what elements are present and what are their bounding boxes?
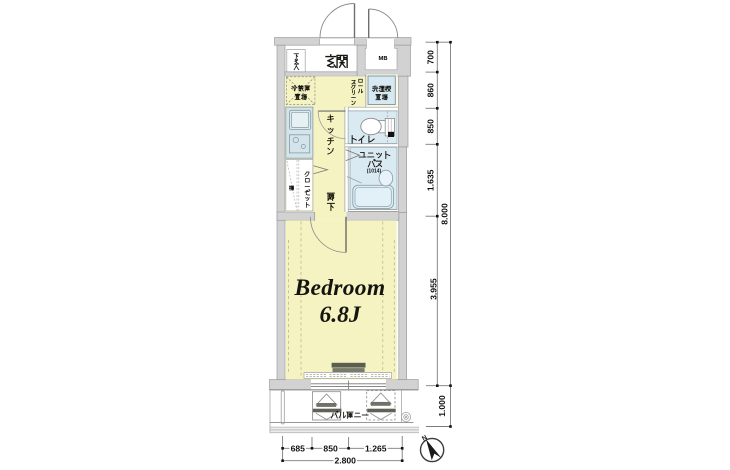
- svg-text:850: 850: [426, 119, 436, 134]
- svg-text:Bedroom: Bedroom: [294, 275, 386, 301]
- svg-text:850: 850: [323, 443, 338, 453]
- svg-text:685: 685: [291, 443, 306, 453]
- svg-text:MB: MB: [378, 56, 387, 62]
- svg-text:2.800: 2.800: [334, 456, 356, 466]
- svg-text:700: 700: [426, 50, 436, 65]
- svg-text:(1014): (1014): [367, 168, 382, 174]
- svg-text:1.265: 1.265: [365, 443, 387, 453]
- svg-text:1.635: 1.635: [426, 169, 436, 191]
- svg-text:3.955: 3.955: [429, 278, 439, 300]
- svg-text:860: 860: [426, 83, 436, 98]
- svg-text:1.000: 1.000: [437, 395, 447, 417]
- svg-text:8.000: 8.000: [439, 203, 449, 225]
- svg-text:6.8J: 6.8J: [319, 302, 361, 328]
